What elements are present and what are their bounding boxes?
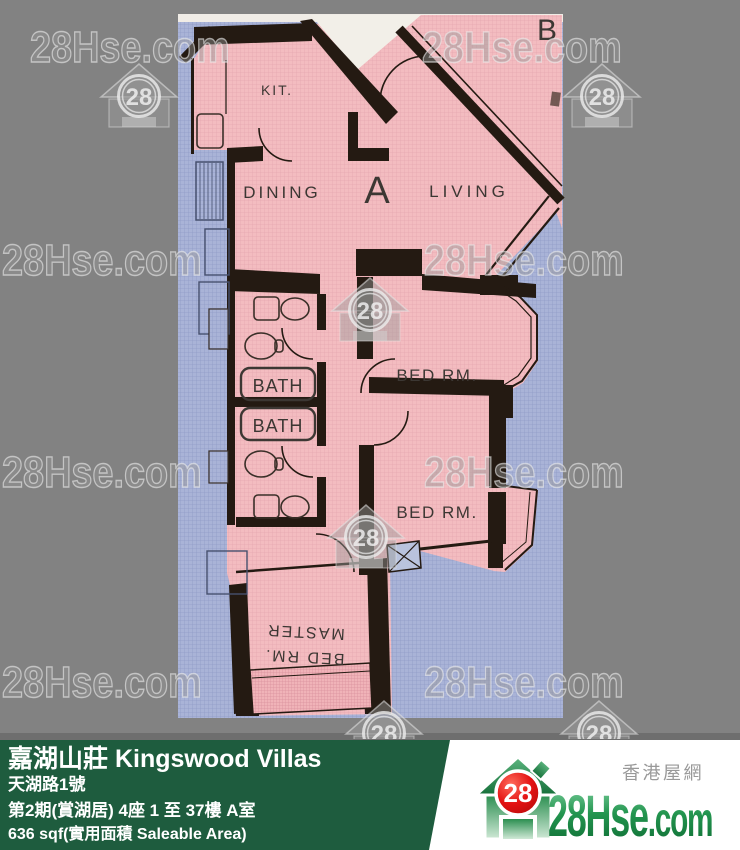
brand-name-main: 28Hse — [548, 784, 648, 849]
bath-upper-label: BATH — [253, 376, 304, 396]
estate-title: 嘉湖山莊 Kingswood Villas — [8, 744, 321, 773]
brand-name-suffix: .com — [648, 794, 713, 847]
kitchen-label: KIT. — [261, 82, 293, 98]
watermark-text — [424, 235, 624, 284]
living-label: LIVING — [429, 182, 509, 201]
bath-lower-label: BATH — [253, 416, 304, 436]
brand-logo-number: 28 — [504, 778, 533, 808]
watermark-text — [30, 22, 230, 71]
master-bay-window — [250, 663, 372, 714]
watermark-text — [424, 657, 624, 706]
watermark-text — [2, 657, 202, 706]
dining-label: DINING — [243, 183, 321, 202]
floor-plan: KIT. DINING A LIVING B BATH BATH BED RM.… — [178, 14, 563, 718]
bedroom-2-label: BED RM. — [396, 503, 477, 522]
watermark-text — [422, 22, 622, 71]
estate-address: 天湖路1號 — [8, 774, 85, 794]
bedroom-1-label: BED RM. — [396, 366, 477, 385]
floorplan-image: 28Hse.com 28 — [0, 0, 740, 850]
estate-block-info: 第2期(賞湖居) 4座 1 至 37樓 A室 — [8, 800, 256, 820]
svg-text:28Hse.com: 28Hse.com — [548, 784, 712, 849]
estate-area-info: 636 sqf(實用面積 Saleable Area) — [8, 824, 247, 843]
brand-tagline: 香港屋網 — [622, 763, 704, 783]
watermark-text — [2, 235, 202, 284]
watermark-text — [2, 447, 202, 496]
unit-a-label: A — [364, 170, 390, 212]
brand-name: 28Hse.com — [548, 784, 712, 849]
floorplan-page: 28Hse.com 28 — [0, 0, 740, 850]
watermark-text — [424, 447, 624, 496]
